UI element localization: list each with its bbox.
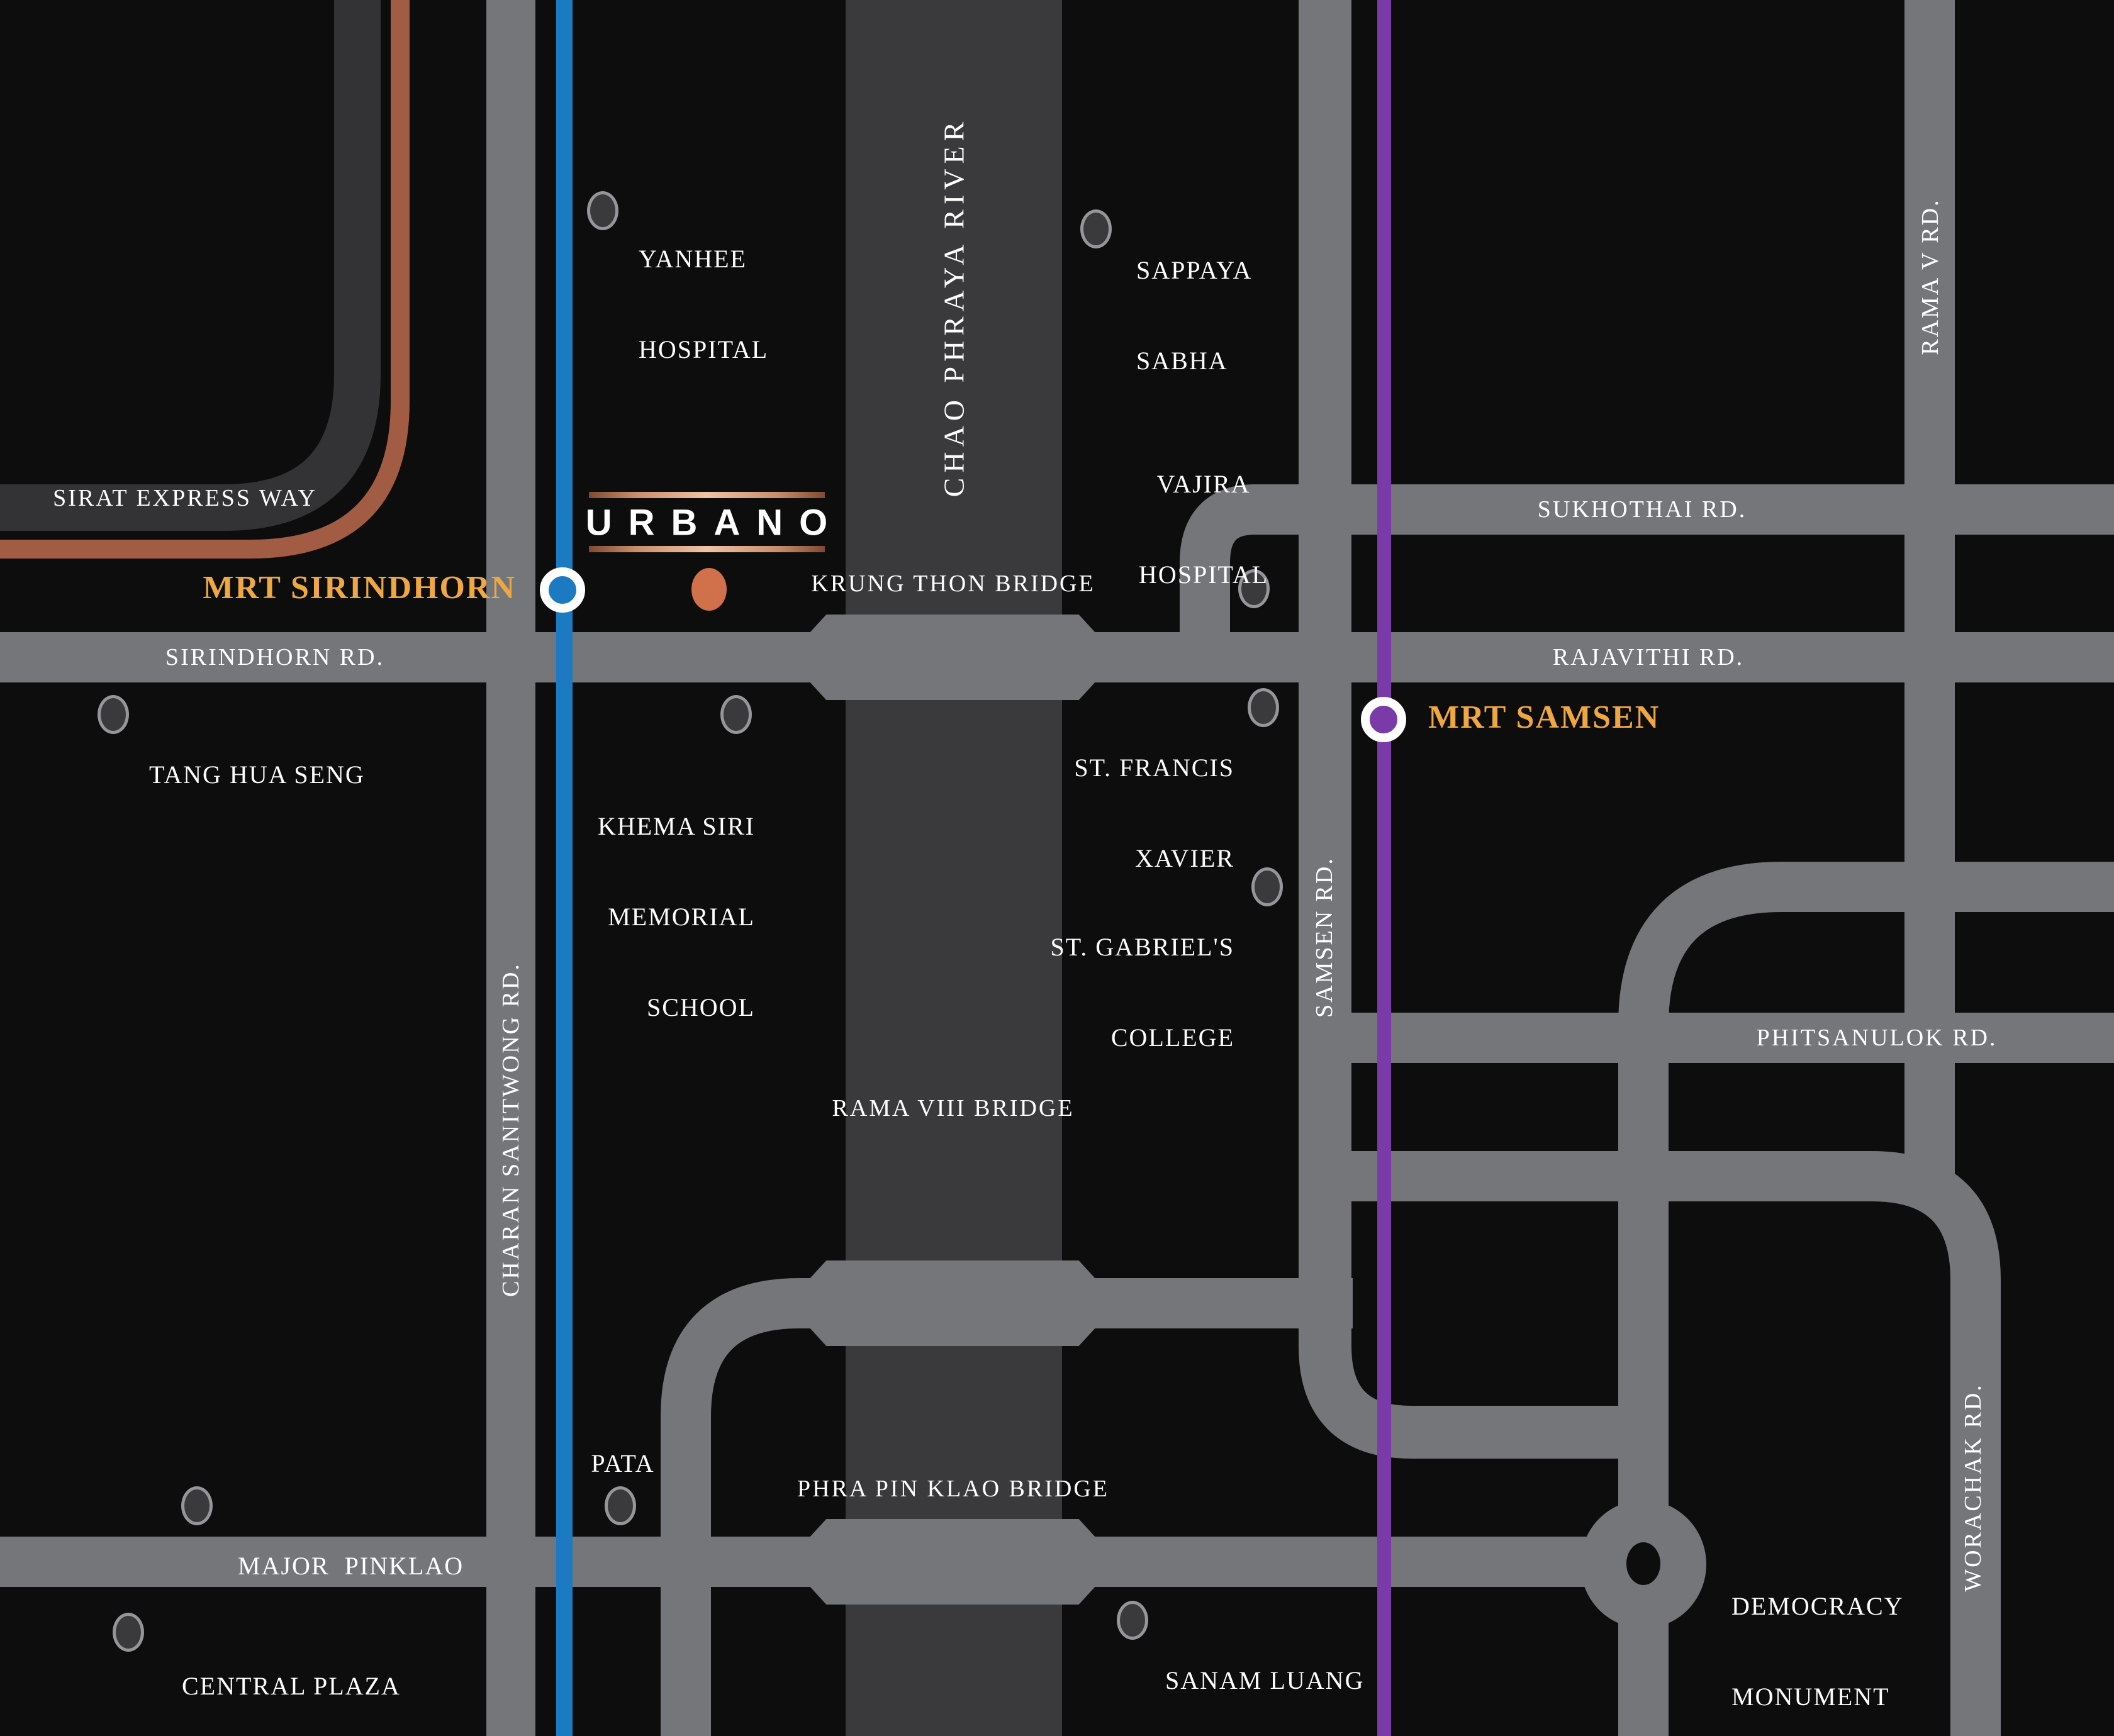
- label-line: MAJOR PINKLAO: [238, 1551, 464, 1581]
- sanam-luang-label: SANAM LUANG: [1165, 1605, 1364, 1736]
- worachak-road-label: WORACHAK RD.: [1959, 1383, 1988, 1592]
- urbano-top-bar: [589, 492, 825, 498]
- label-line: PATA: [591, 1449, 654, 1479]
- mrt-samsen-station: [1361, 697, 1406, 742]
- mrt-samsen-label: MRT SAMSEN: [1428, 699, 1660, 736]
- label-line: HOSPITAL: [1139, 560, 1268, 590]
- phitsanulok-road-label: PHITSANULOK RD.: [1757, 1023, 1998, 1052]
- label-line: MONUMENT: [1731, 1682, 1904, 1712]
- sirat-express-way-label: SIRAT EXPRESS WAY: [53, 484, 317, 513]
- sirindhorn-road-label: SIRINDHORN RD.: [165, 643, 384, 672]
- sappaya-sabha-dot: [1080, 209, 1112, 248]
- st-francis-xavier-dot: [1248, 688, 1279, 727]
- label-line: MEMORIAL: [598, 902, 755, 932]
- st-gabriels-college-dot: [1251, 867, 1283, 906]
- rama-viii-bridge: [809, 1260, 1096, 1346]
- sappaya-sabha-label: SAPPAYA SABHA: [1136, 195, 1253, 437]
- vajira-hospital-label: VAJIRA HOSPITAL: [1139, 409, 1268, 650]
- sukhothai-road-label: SUKHOTHAI RD.: [1538, 495, 1747, 524]
- phra-pin-klao-bridge: [809, 1519, 1096, 1605]
- major-pinklao-dot: [181, 1486, 213, 1525]
- mrt-blue-line: [556, 0, 573, 1736]
- label-line: ST. FRANCIS: [1074, 753, 1234, 783]
- charan-sanitwong-road-label: CHARAN SANITWONG RD.: [496, 962, 525, 1297]
- label-line: ST. GABRIEL'S: [1051, 932, 1234, 962]
- chao-phraya-river-label: CHAO PHRAYA RIVER: [937, 117, 971, 498]
- khema-siri-school-label: KHEMA SIRI MEMORIAL SCHOOL: [598, 751, 755, 1083]
- tang-hua-seng-dot: [98, 695, 129, 734]
- urbano-bottom-bar: [589, 546, 825, 552]
- rajavithi-road-label: RAJAVITHI RD.: [1553, 643, 1744, 672]
- label-line: SAPPAYA: [1136, 255, 1253, 286]
- yanhee-hospital-dot: [587, 191, 618, 230]
- label-line: SANAM LUANG: [1165, 1666, 1364, 1696]
- label-line: HOSPITAL: [639, 335, 768, 365]
- label-line: XAVIER: [1074, 843, 1234, 874]
- label-line: DEMOCRACY: [1731, 1591, 1904, 1622]
- urbano-wordmark: URBANO: [586, 502, 844, 544]
- tang-hua-seng-label: TANG HUA SENG: [149, 699, 365, 850]
- label-line: VAJIRA: [1139, 469, 1268, 499]
- mrt-purple-line: [1377, 0, 1391, 1736]
- krung-thon-bridge: [809, 615, 1096, 700]
- samsen-road-label: SAMSEN RD.: [1310, 857, 1339, 1018]
- label-line: CENTRAL PLAZA: [182, 1671, 401, 1701]
- krung-thon-bridge-label: KRUNG THON BRIDGE: [811, 569, 1095, 598]
- mrt-sirindhorn-label: MRT SIRINDHORN: [203, 569, 516, 606]
- label-line: SABHA: [1136, 346, 1253, 376]
- phra-pin-klao-bridge-label: PHRA PIN KLAO BRIDGE: [797, 1474, 1109, 1503]
- central-plaza-pinklao-dot: [113, 1613, 144, 1652]
- sanam-luang-dot: [1117, 1601, 1148, 1640]
- label-line: SCHOOL: [598, 993, 755, 1023]
- mrt-sirindhorn-station: [540, 567, 585, 613]
- st-gabriels-college-label: ST. GABRIEL'S COLLEGE: [1051, 872, 1234, 1113]
- label-line: YANHEE: [639, 244, 768, 274]
- label-line: COLLEGE: [1051, 1023, 1234, 1053]
- democracy-monument-center: [1626, 1542, 1660, 1585]
- rama-v-road-label: RAMA V RD.: [1916, 198, 1945, 355]
- label-line: TANG HUA SENG: [149, 760, 365, 790]
- khema-siri-school-dot: [720, 695, 752, 734]
- label-line: KHEMA SIRI: [598, 811, 755, 842]
- bangkok-transit-map: URBANO MRT SIRINDHORN MRT SAMSEN SIRAT E…: [0, 0, 2114, 1736]
- urbano-location-dot: [691, 568, 727, 611]
- yanhee-hospital-label: YANHEE HOSPITAL: [639, 184, 768, 425]
- central-plaza-pinklao-label: CENTRAL PLAZA PINKLAO: [182, 1611, 401, 1736]
- rama-viii-bridge-label: RAMA VIII BRIDGE: [832, 1094, 1074, 1123]
- pata-label: PATA: [591, 1388, 654, 1539]
- democracy-monument-label: DEMOCRACY MONUMENT: [1731, 1531, 1904, 1736]
